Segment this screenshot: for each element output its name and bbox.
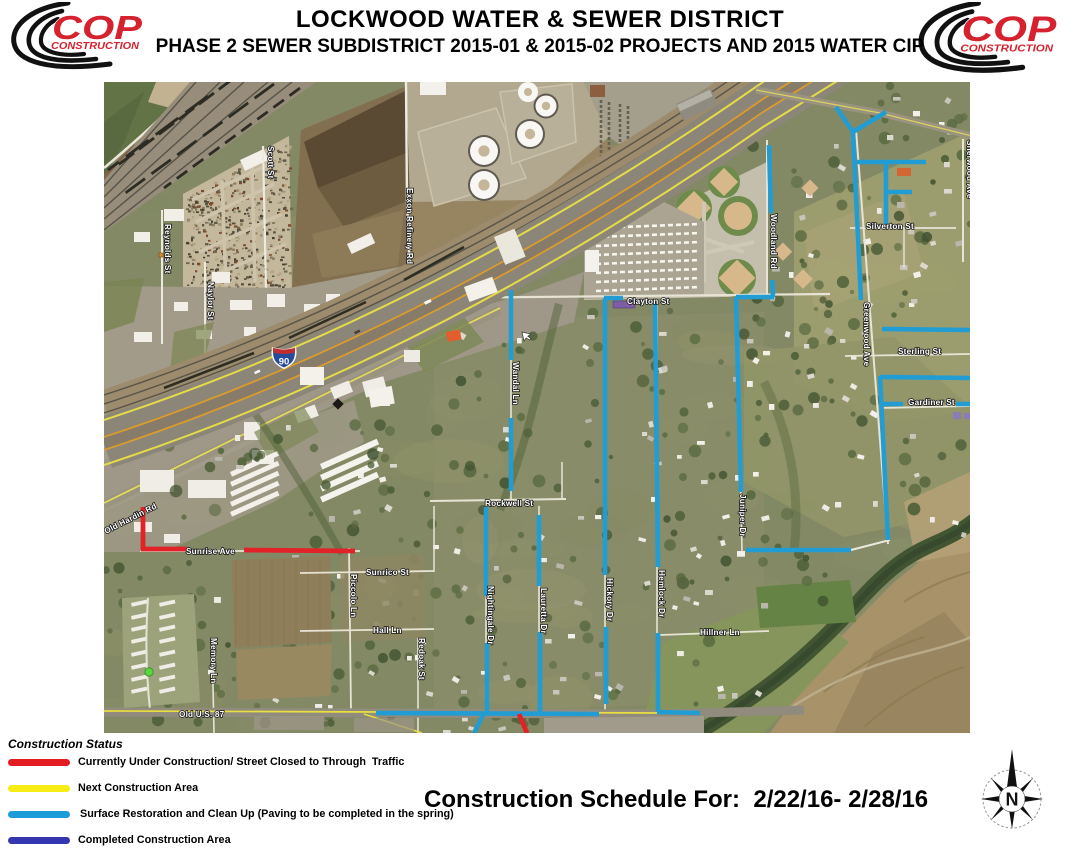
- svg-text:Piccolo Ln: Piccolo Ln: [349, 574, 358, 617]
- svg-text:Hillner Ln: Hillner Ln: [700, 628, 740, 637]
- svg-text:Sherwood Ave: Sherwood Ave: [965, 140, 970, 199]
- svg-text:Scott St: Scott St: [266, 146, 275, 179]
- svg-text:Redoak St: Redoak St: [417, 638, 426, 680]
- svg-text:Hall Ln: Hall Ln: [373, 626, 402, 635]
- svg-text:Reynolds St: Reynolds St: [163, 224, 172, 274]
- svg-text:Clayton St: Clayton St: [627, 297, 670, 306]
- svg-text:Sterling St: Sterling St: [898, 347, 941, 356]
- svg-text:Gardiner St: Gardiner St: [908, 398, 955, 407]
- svg-text:Hemlock Dr: Hemlock Dr: [657, 570, 666, 618]
- svg-text:Nightingale Dr: Nightingale Dr: [486, 586, 495, 645]
- svg-text:Greenwood Ave: Greenwood Ave: [862, 302, 871, 367]
- svg-text:Sunrise Ave: Sunrise Ave: [186, 547, 235, 556]
- svg-text:Memory Ln: Memory Ln: [209, 638, 218, 683]
- svg-text:Lauretta Dr: Lauretta Dr: [539, 588, 548, 634]
- svg-text:N: N: [1006, 790, 1019, 810]
- svg-text:Wandal Ln: Wandal Ln: [511, 362, 520, 405]
- svg-text:Old U.S. 87: Old U.S. 87: [179, 710, 225, 719]
- svg-text:Woodland Rd: Woodland Rd: [769, 214, 778, 269]
- svg-text:Naylor St: Naylor St: [206, 282, 215, 320]
- svg-text:Juniper Dr: Juniper Dr: [738, 494, 747, 538]
- svg-text:Exxon Refinery Rd: Exxon Refinery Rd: [405, 188, 414, 264]
- svg-text:Silverton St: Silverton St: [866, 222, 914, 231]
- svg-text:Rockwell St: Rockwell St: [485, 499, 533, 508]
- svg-text:Hickory Dr: Hickory Dr: [605, 578, 614, 622]
- svg-text:Sunrico St: Sunrico St: [366, 568, 409, 577]
